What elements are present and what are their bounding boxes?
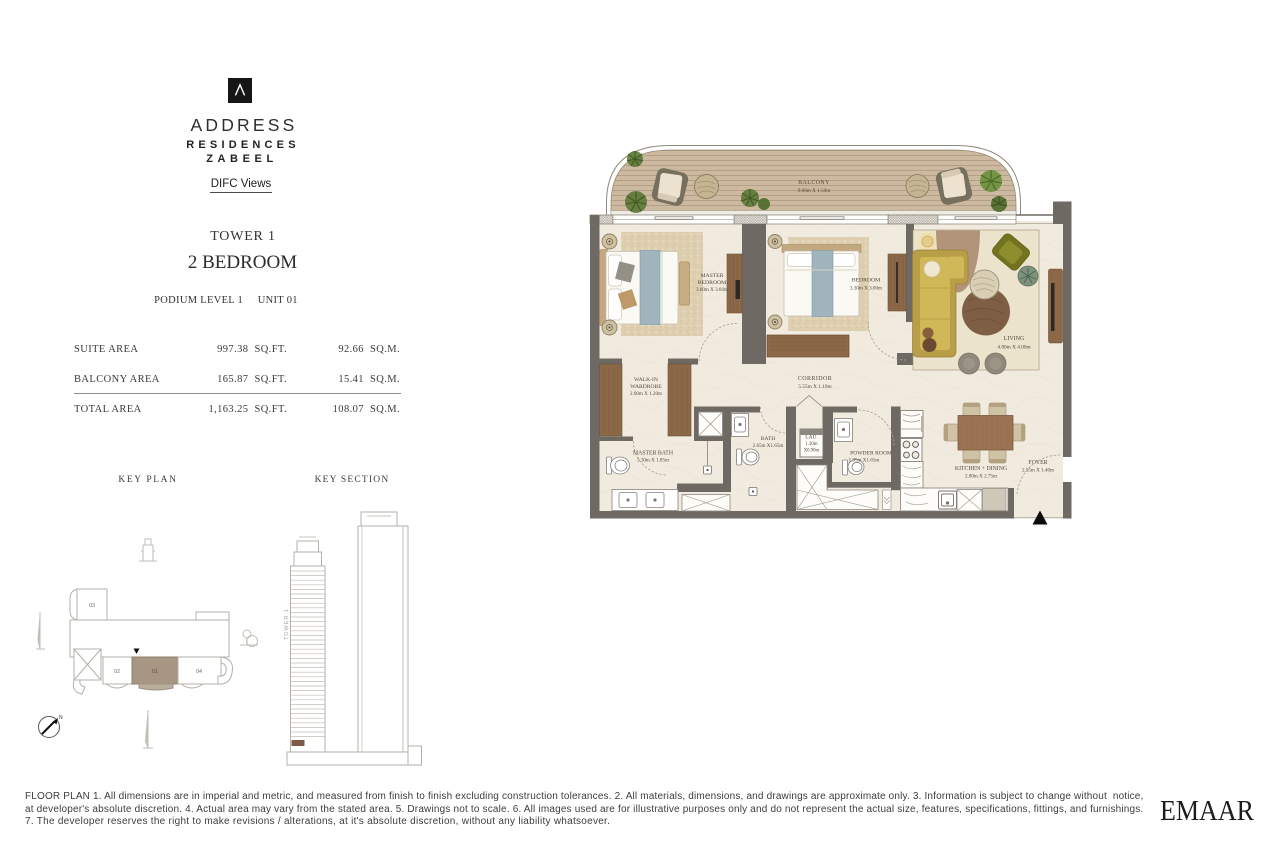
svg-text:WALK-IN: WALK-IN	[634, 377, 658, 383]
svg-text:BEDROOM: BEDROOM	[852, 278, 880, 284]
svg-text:3.60m X 3.60m: 3.60m X 3.60m	[696, 287, 728, 293]
svg-text:MASTER: MASTER	[700, 273, 723, 279]
svg-text:BEDROOM: BEDROOM	[698, 280, 726, 286]
svg-text:FOYER: FOYER	[1028, 460, 1047, 466]
svg-text:BATH: BATH	[761, 436, 776, 442]
svg-text:01: 01	[152, 669, 158, 675]
svg-text:N: N	[59, 715, 63, 721]
svg-text:LIVING: LIVING	[1004, 336, 1025, 342]
svg-text:2.80m X 2.75m: 2.80m X 2.75m	[965, 474, 997, 480]
svg-text:3.30m X 3.00m: 3.30m X 3.00m	[850, 286, 882, 292]
svg-text:4.80m X 4.00m: 4.80m X 4.00m	[997, 345, 1031, 351]
svg-text:5.55m X 1.10m: 5.55m X 1.10m	[798, 384, 832, 390]
svg-text:LAU.: LAU.	[805, 435, 817, 441]
svg-text:2.65m X1.65m: 2.65m X1.65m	[753, 443, 784, 449]
svg-text:CORRIDOR: CORRIDOR	[798, 376, 832, 382]
svg-text:1.30m: 1.30m	[805, 442, 817, 447]
svg-text:POWDER ROOM: POWDER ROOM	[850, 451, 892, 457]
svg-text:TOWER 1: TOWER 1	[284, 608, 290, 640]
svg-text:X0.90m: X0.90m	[804, 449, 820, 454]
svg-text:MASTER BATH: MASTER BATH	[633, 451, 674, 457]
svg-text:WARDROBE: WARDROBE	[630, 384, 662, 390]
svg-text:02: 02	[114, 669, 120, 675]
svg-text:1.95m X1.65m: 1.95m X1.65m	[849, 458, 880, 464]
svg-text:2.00m X 1.20m: 2.00m X 1.20m	[630, 391, 662, 397]
svg-text:3.30m X 1.85m: 3.30m X 1.85m	[637, 458, 669, 464]
svg-text:03: 03	[89, 603, 95, 609]
svg-text:BALCONY: BALCONY	[798, 180, 830, 186]
svg-text:9.60m X 1.50m: 9.60m X 1.50m	[798, 188, 831, 194]
svg-text:04: 04	[196, 669, 202, 675]
svg-text:KITCHEN + DINING: KITCHEN + DINING	[955, 466, 1007, 472]
